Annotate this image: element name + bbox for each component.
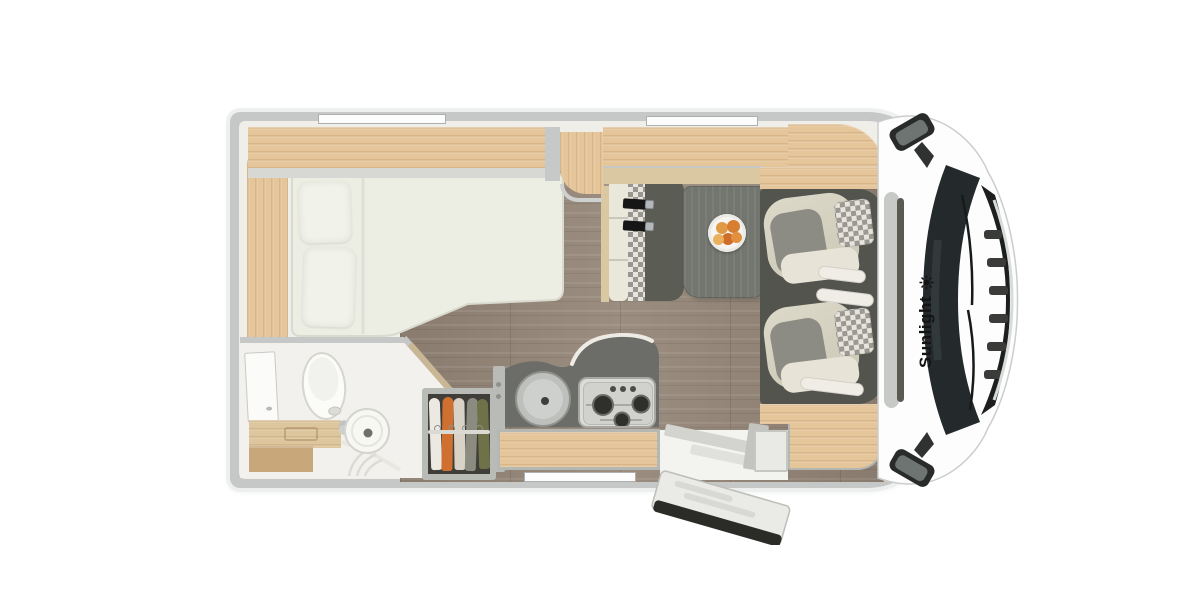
stove-knob: [620, 386, 626, 392]
brand-name: Sunlight: [916, 296, 936, 368]
burner: [593, 395, 613, 415]
stove-knob: [610, 386, 616, 392]
dashboard-shadow: [897, 198, 904, 402]
window-slot: [524, 472, 636, 482]
burner: [615, 413, 630, 427]
bench-backrest-cushions: [609, 177, 628, 301]
wardrobe-rail: [428, 430, 490, 434]
basin-drain: [364, 429, 373, 438]
window-slot: [318, 114, 446, 124]
sunlight-logo-icon: [919, 275, 934, 290]
fruit: [727, 220, 740, 233]
overhead-cabinet-dinette: [603, 127, 789, 168]
hanging-garment: [453, 398, 465, 470]
dashboard-band: [884, 192, 899, 408]
window-slot: [646, 116, 758, 126]
brand-lettering: Sunlight: [916, 238, 936, 368]
hanging-garment: [477, 399, 490, 469]
kitchen-drawer-front: [497, 429, 660, 470]
hanging-garment: [441, 397, 453, 471]
fruit: [731, 232, 742, 243]
sink-drain: [541, 397, 549, 405]
bathroom-cabinet-door: [244, 351, 279, 423]
gas-stove: [578, 377, 656, 428]
bench-checkered-band: [628, 177, 645, 301]
pillow: [302, 246, 357, 328]
washbasin: [337, 403, 401, 463]
vanity-front: [249, 446, 313, 472]
fruit-plate: [708, 214, 746, 252]
pillow: [298, 180, 352, 244]
seatbelt-buckle: [645, 200, 655, 210]
kitchen-sink: [514, 370, 574, 430]
entrance-side-panel: [754, 430, 788, 472]
seatbelt-strap: [623, 198, 647, 210]
cabinet-underside-tan: [603, 166, 765, 184]
seatbelt-buckle: [645, 222, 655, 232]
door-handle: [266, 406, 272, 410]
vanity-soap-dish: [284, 427, 318, 441]
hanging-garment: [429, 398, 443, 470]
rear-shelf-column: [247, 160, 288, 340]
bench-wood-trim: [601, 186, 609, 302]
stove-knob: [630, 386, 636, 392]
fruit: [713, 234, 724, 245]
wardrobe: [422, 388, 496, 480]
cabinet-divider: [545, 127, 560, 181]
cab-front: [850, 100, 1050, 500]
overhead-cabinet-rear: [248, 127, 545, 169]
overhead-cabinet-edge: [248, 168, 545, 178]
burner: [633, 396, 650, 413]
seatbelt-strap: [623, 220, 647, 232]
bench-seat: [645, 177, 684, 301]
stove-burners: [580, 379, 654, 426]
motorhome-floorplan-top-view: Sunlight: [0, 0, 1200, 600]
entry-door-open: [650, 460, 820, 545]
